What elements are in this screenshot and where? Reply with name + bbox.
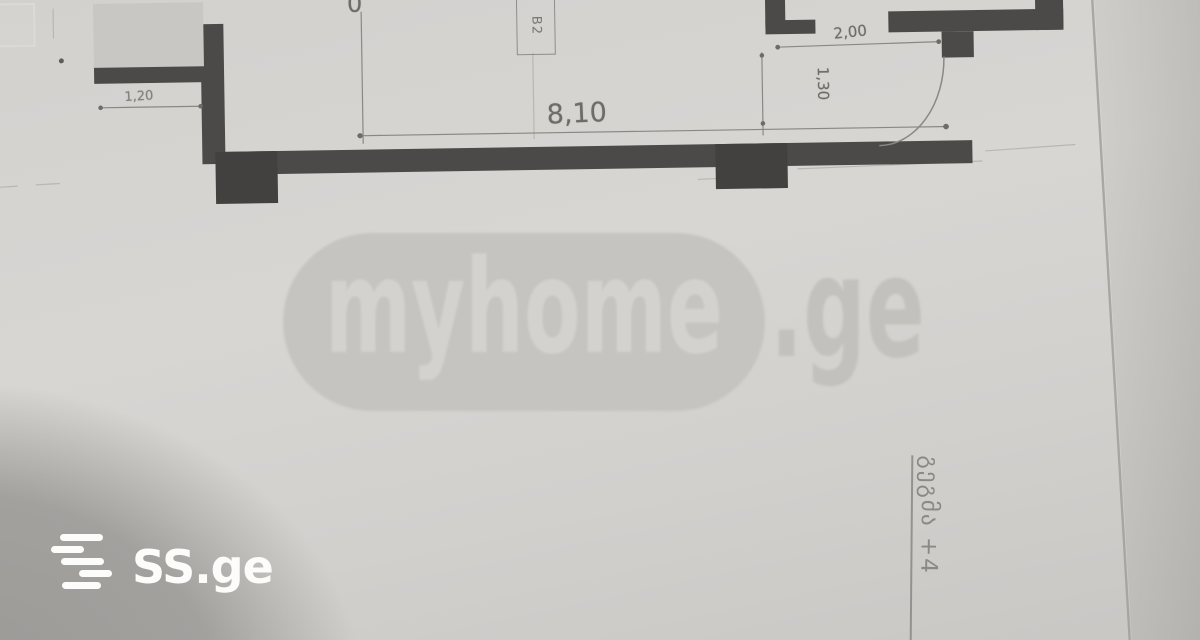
floor-plan-photo: 8,10 1,20 2,00 1,30 0 B2 myhome .ge გეგმ… <box>0 0 1200 640</box>
watermark-suffix-text: .ge <box>770 227 925 390</box>
ssge-icon-bar <box>62 582 101 589</box>
watermark-brand-text: myhome <box>325 231 723 383</box>
ssge-icon-bar <box>51 546 84 553</box>
ssge-logo-text: SS.ge <box>132 540 273 594</box>
ssge-icon-bar <box>60 534 103 541</box>
ssge-icon-bar <box>79 570 112 577</box>
level-label: გეგმა +4 <box>910 455 957 640</box>
ssge-icon-bar <box>61 558 104 565</box>
watermark-text-layer: myhome .ge <box>270 220 970 430</box>
